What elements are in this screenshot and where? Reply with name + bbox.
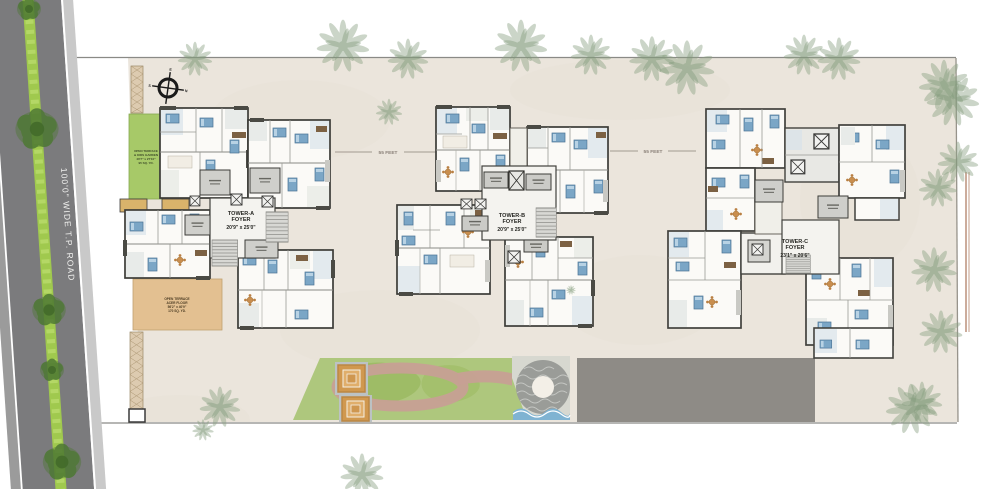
svg-text:95 SQ. YD.: 95 SQ. YD. — [138, 161, 153, 165]
svg-text:FOYER: FOYER — [786, 245, 805, 251]
svg-text:55 FEET: 55 FEET — [644, 149, 663, 155]
svg-text:170 SQ. YD.: 170 SQ. YD. — [168, 309, 186, 313]
svg-text:23'1" x 20'6": 23'1" x 20'6" — [780, 253, 810, 259]
svg-text:FOYER: FOYER — [503, 219, 522, 225]
svg-text:20'9" x 25'0": 20'9" x 25'0" — [497, 227, 527, 233]
svg-text:55 FEET: 55 FEET — [379, 150, 398, 156]
svg-text:20'9" x 25'0": 20'9" x 25'0" — [226, 225, 256, 231]
svg-text:FOYER: FOYER — [232, 217, 251, 223]
